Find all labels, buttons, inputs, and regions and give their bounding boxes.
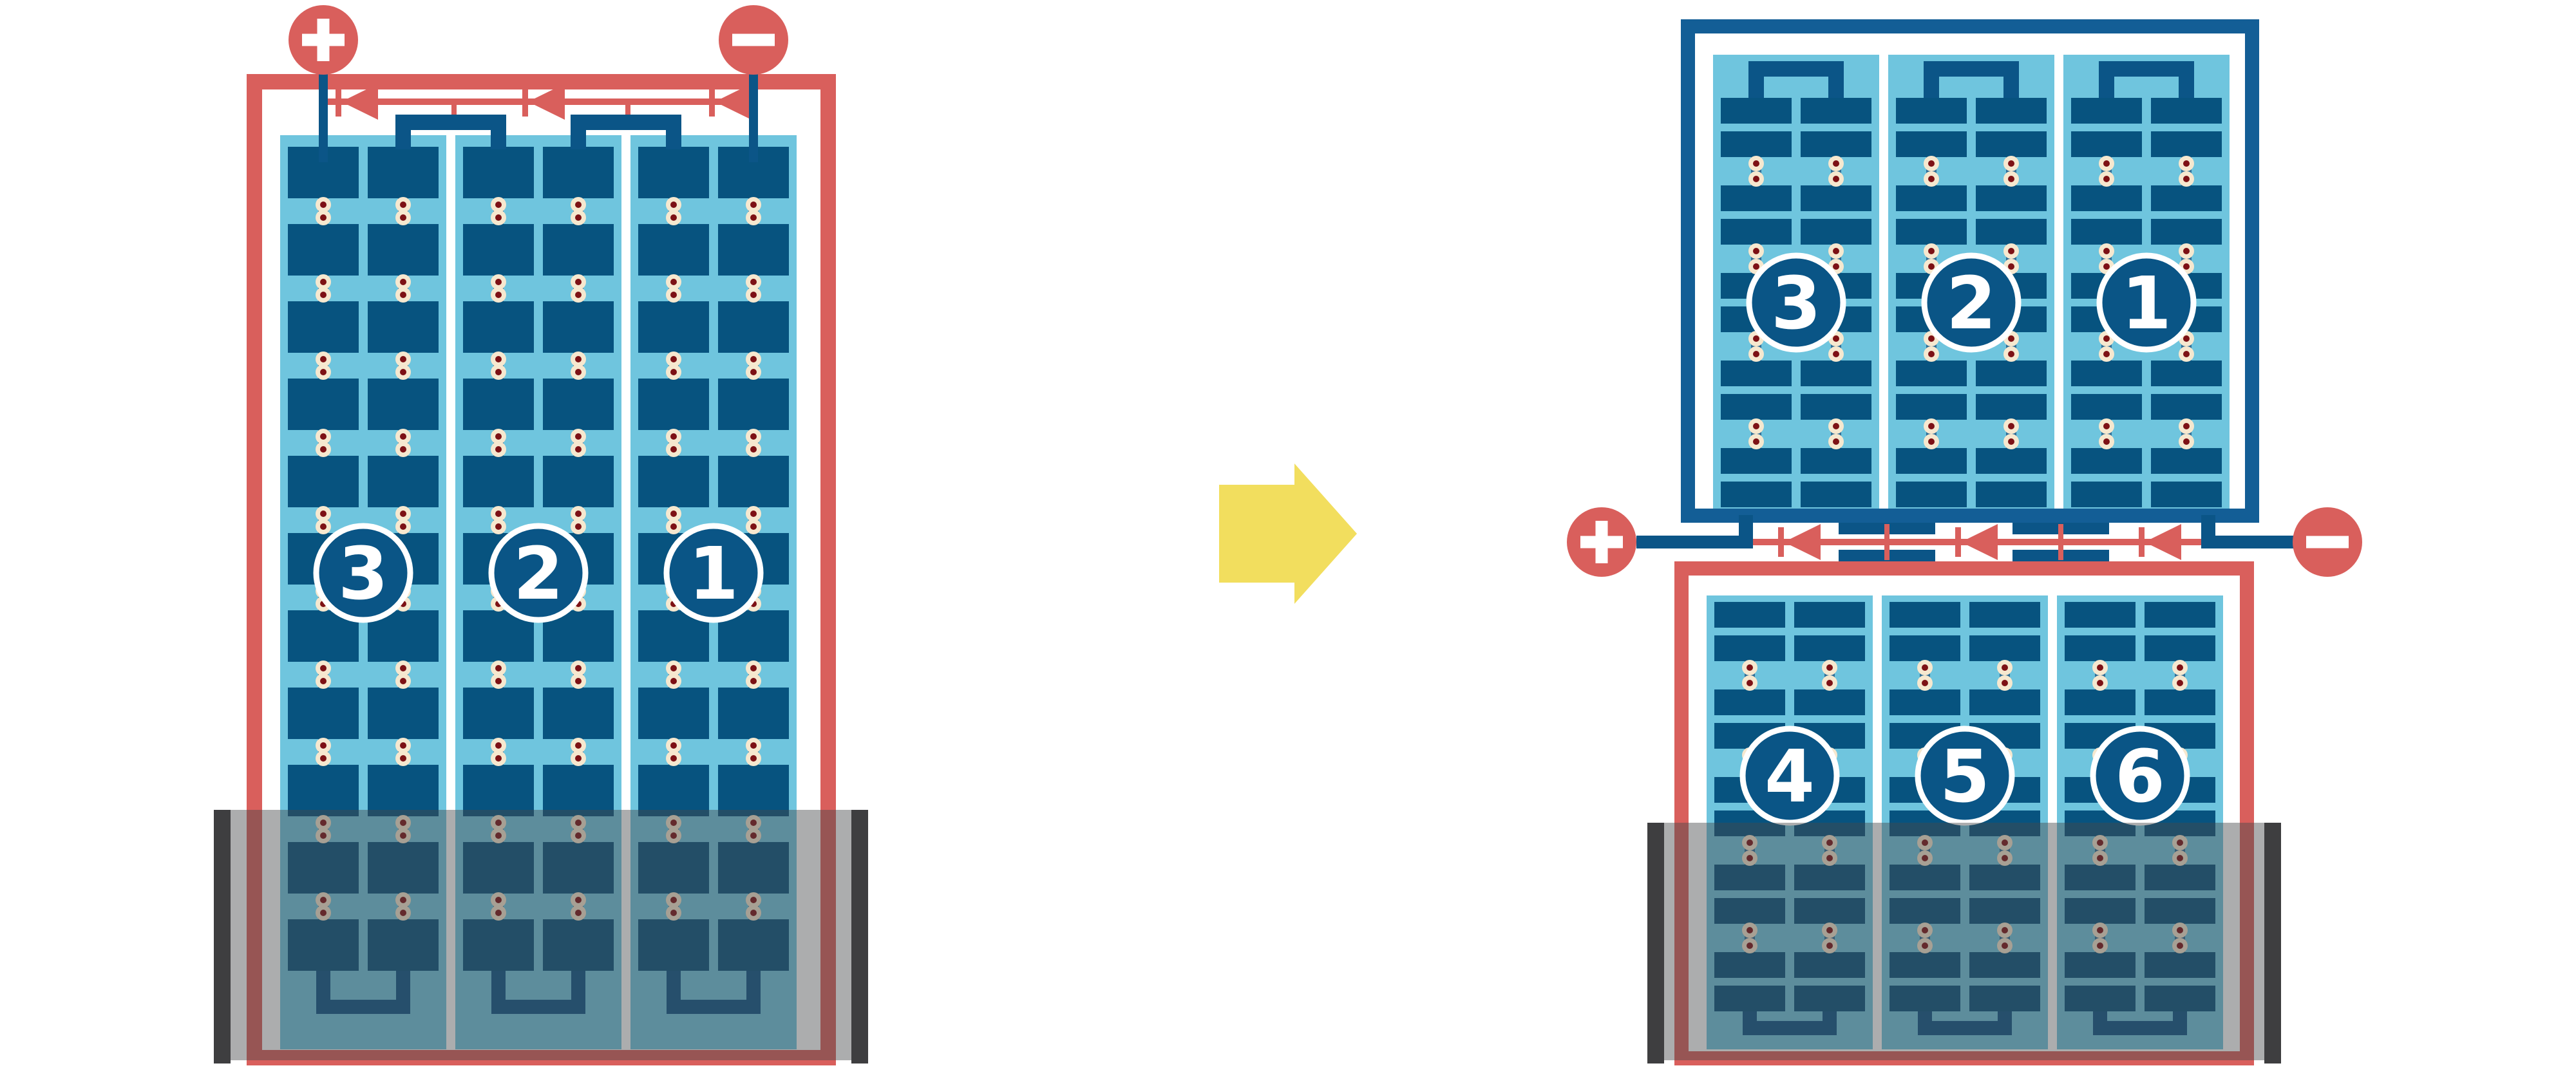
solder-dot-core	[575, 292, 582, 298]
solder-dot-core	[575, 755, 582, 762]
solar-cell	[1721, 185, 1792, 211]
solder-dot-core	[2008, 335, 2014, 342]
string-number: 2	[1946, 262, 1996, 346]
solder-dot-core	[2008, 438, 2014, 445]
solar-cell	[2071, 394, 2142, 420]
solder-dot-core	[495, 279, 502, 285]
bypass-diode-bar	[1778, 527, 1784, 557]
solder-dot-core	[1753, 248, 1759, 254]
solder-dot-core	[2183, 438, 2190, 445]
solar-cell	[288, 456, 359, 507]
solar-cell	[638, 688, 709, 739]
string-number: 5	[1940, 735, 1990, 819]
solar-cell	[1976, 361, 2047, 386]
shade-edge-bar	[1647, 823, 1664, 1063]
solder-dot-core	[400, 356, 406, 362]
solar-cell	[1801, 448, 1871, 474]
solar-cell	[288, 224, 359, 276]
solder-dot-core	[1928, 176, 1935, 182]
busbar-leg	[2099, 61, 2114, 98]
solar-cell	[1896, 448, 1967, 474]
solar-cell	[1976, 131, 2047, 157]
solder-dot-core	[320, 523, 327, 530]
solder-dot-core	[495, 356, 502, 362]
solar-cell	[2151, 219, 2222, 245]
solar-cell	[1896, 98, 1967, 124]
solar-cell	[1794, 689, 1865, 715]
solar-cell	[368, 301, 439, 353]
solder-dot-core	[1753, 351, 1759, 357]
solar-cell	[638, 301, 709, 353]
solder-dot-core	[670, 755, 677, 762]
solder-dot-core	[670, 511, 677, 517]
solar-cell	[1794, 602, 1865, 628]
solder-dot-core	[1753, 160, 1759, 167]
shade-overlay	[231, 810, 851, 1060]
solder-dot-core	[1833, 423, 1839, 429]
solar-cell	[2071, 98, 2142, 124]
solar-cell	[638, 456, 709, 507]
solar-cell	[2071, 185, 2142, 211]
solder-dot-core	[400, 523, 406, 530]
solar-cell	[1896, 131, 1967, 157]
solar-cell	[1969, 689, 2040, 715]
bypass-diode-bar	[709, 87, 715, 117]
solder-dot-core	[670, 279, 677, 285]
solder-dot-core	[495, 446, 502, 453]
solar-cell	[1896, 394, 1967, 420]
solar-panel-string-diagram: 321 321456	[0, 0, 2576, 1068]
solder-dot-core	[2103, 423, 2110, 429]
solder-dot-core	[1928, 438, 1935, 445]
solar-cell	[1801, 219, 1871, 245]
solder-dot-core	[1753, 335, 1759, 342]
solder-dot-core	[2183, 351, 2190, 357]
solar-cell	[1801, 482, 1871, 507]
solar-cell	[1721, 98, 1792, 124]
solder-dot-core	[575, 433, 582, 440]
solder-dot-core	[2002, 680, 2008, 686]
solder-dot-core	[1928, 160, 1935, 167]
solder-dot-core	[320, 369, 327, 375]
solar-cell	[1889, 635, 1960, 661]
solar-cell	[638, 147, 709, 198]
solder-dot-core	[750, 755, 757, 762]
solar-cell	[1714, 602, 1785, 628]
solar-cell	[2071, 482, 2142, 507]
solder-dot-core	[670, 678, 677, 684]
solar-cell	[638, 379, 709, 430]
solder-dot-core	[2177, 680, 2183, 686]
string-number: 1	[2121, 262, 2172, 346]
solar-cell	[2145, 689, 2215, 715]
solder-dot-core	[1833, 335, 1839, 342]
solder-dot-core	[1833, 176, 1839, 182]
busbar-leg	[491, 115, 506, 149]
solder-dot-core	[1753, 176, 1759, 182]
solder-dot-core	[320, 755, 327, 762]
solar-cell	[368, 456, 439, 507]
solder-dot-core	[2103, 438, 2110, 445]
solder-dot-core	[575, 369, 582, 375]
solar-cell	[2151, 98, 2222, 124]
solar-cell	[718, 456, 789, 507]
solder-dot-core	[400, 292, 406, 298]
solar-cell	[2065, 602, 2136, 628]
solder-dot-core	[2183, 335, 2190, 342]
solder-dot-core	[2183, 248, 2190, 254]
solder-dot-core	[320, 433, 327, 440]
solar-cell	[2151, 185, 2222, 211]
negative-terminal	[719, 5, 788, 75]
solder-dot-core	[2183, 176, 2190, 182]
solder-dot-core	[320, 356, 327, 362]
solder-dot-core	[1826, 664, 1833, 671]
shading-overlays	[214, 810, 2281, 1063]
solder-dot-core	[320, 279, 327, 285]
solar-cell	[1801, 394, 1871, 420]
solar-cell	[288, 765, 359, 816]
solder-dot-core	[750, 369, 757, 375]
solder-dot-core	[400, 279, 406, 285]
solar-cell	[2151, 131, 2222, 157]
solder-dot-core	[2008, 160, 2014, 167]
solder-dot-core	[2103, 176, 2110, 182]
string-number: 1	[688, 532, 739, 616]
solder-dot-core	[750, 511, 757, 517]
solder-dot-core	[575, 665, 582, 671]
solder-dot-core	[750, 523, 757, 530]
solder-dot-core	[750, 356, 757, 362]
top-busbar	[571, 115, 681, 130]
solar-cell	[1976, 394, 2047, 420]
solder-dot-core	[670, 369, 677, 375]
solder-dot-core	[1833, 263, 1839, 270]
solar-cell	[543, 456, 614, 507]
solder-dot-core	[575, 678, 582, 684]
solder-dot-core	[400, 678, 406, 684]
solar-cell	[638, 224, 709, 276]
solder-dot-core	[2177, 664, 2183, 671]
solar-cell	[368, 147, 439, 198]
solder-dot-core	[750, 678, 757, 684]
solder-dot-core	[575, 214, 582, 221]
solar-cell	[1801, 98, 1871, 124]
diode-junction	[2058, 524, 2063, 560]
solar-cell	[288, 301, 359, 353]
solder-dot-core	[2002, 664, 2008, 671]
solder-dot-core	[750, 292, 757, 298]
solder-dot-core	[400, 742, 406, 749]
positive-terminal	[289, 5, 358, 75]
solar-cell	[1714, 635, 1785, 661]
string-number: 6	[2115, 735, 2165, 819]
solar-cell	[1721, 219, 1792, 245]
solder-dot-core	[750, 665, 757, 671]
solder-dot-core	[670, 292, 677, 298]
solder-dot-core	[1747, 680, 1753, 686]
solder-dot-core	[495, 292, 502, 298]
solar-cell	[1976, 219, 2047, 245]
solar-cell	[1721, 361, 1792, 386]
transform-arrow-icon	[1219, 464, 1357, 604]
solder-dot-core	[750, 279, 757, 285]
solar-cell	[1714, 689, 1785, 715]
solder-dot-core	[320, 446, 327, 453]
solder-dot-core	[495, 678, 502, 684]
solar-cell	[2145, 635, 2215, 661]
solder-dot-core	[1826, 680, 1833, 686]
solder-dot-core	[400, 755, 406, 762]
minus-icon	[732, 34, 775, 46]
solar-cell	[463, 379, 534, 430]
string-number: 3	[338, 532, 388, 616]
solar-cell	[543, 765, 614, 816]
shade-overlay	[1664, 823, 2264, 1060]
solar-cell	[1801, 361, 1871, 386]
solder-dot-core	[670, 214, 677, 221]
solder-dot-core	[400, 665, 406, 671]
solar-cell	[463, 688, 534, 739]
solar-cell	[368, 765, 439, 816]
solder-dot-core	[1922, 680, 1928, 686]
solder-dot-core	[400, 201, 406, 208]
solder-dot-core	[670, 433, 677, 440]
solder-dot-core	[320, 201, 327, 208]
solar-cell	[718, 224, 789, 276]
solder-dot-core	[400, 446, 406, 453]
solder-dot-core	[1922, 664, 1928, 671]
solar-cell	[2071, 361, 2142, 386]
busbar-leg	[1748, 61, 1764, 98]
solder-dot-core	[495, 201, 502, 208]
solder-dot-core	[320, 665, 327, 671]
solar-cell	[543, 688, 614, 739]
solder-dot-core	[750, 214, 757, 221]
solder-dot-core	[575, 511, 582, 517]
transform-arrow	[1219, 464, 1357, 604]
solar-cell	[543, 379, 614, 430]
solar-cell	[1976, 185, 2047, 211]
solar-cell	[1721, 448, 1792, 474]
solder-dot-core	[1833, 351, 1839, 357]
busbar-leg	[1828, 61, 1844, 98]
solder-dot-core	[1928, 248, 1935, 254]
solder-dot-core	[2103, 160, 2110, 167]
solder-dot-core	[400, 511, 406, 517]
solar-cell	[288, 688, 359, 739]
shade-edge-bar	[2264, 823, 2281, 1063]
solar-cell	[1721, 131, 1792, 157]
solar-cell	[1969, 635, 2040, 661]
solar-cell	[288, 379, 359, 430]
solar-cell	[2071, 219, 2142, 245]
bypass-diode-icon	[2145, 524, 2181, 560]
solar-cell	[1976, 98, 2047, 124]
solar-cell	[1976, 448, 2047, 474]
solar-cell	[543, 224, 614, 276]
solder-dot-core	[1747, 664, 1753, 671]
solder-dot-core	[575, 523, 582, 530]
plus-icon	[1596, 521, 1608, 563]
solder-dot-core	[1833, 438, 1839, 445]
solder-dot-core	[2103, 335, 2110, 342]
solder-dot-core	[495, 433, 502, 440]
negative-terminal	[2293, 507, 2362, 577]
solder-dot-core	[1753, 263, 1759, 270]
solar-cell	[543, 147, 614, 198]
bypass-diode-bar	[1955, 527, 1961, 557]
solar-cell	[638, 765, 709, 816]
solar-cell	[2071, 131, 2142, 157]
bypass-diode-bar	[522, 87, 528, 117]
solar-cell	[1896, 361, 1967, 386]
diagram-canvas: 321 321456	[0, 0, 2576, 1068]
solder-dot-core	[320, 292, 327, 298]
solder-dot-core	[670, 742, 677, 749]
solder-dot-core	[495, 665, 502, 671]
solar-cell	[1889, 689, 1960, 715]
solar-cell	[1976, 482, 2047, 507]
top-busbar	[395, 115, 506, 130]
solder-dot-core	[575, 356, 582, 362]
solder-dot-core	[2183, 263, 2190, 270]
solder-dot-core	[575, 201, 582, 208]
solar-cell	[1721, 482, 1792, 507]
solder-dot-core	[495, 755, 502, 762]
solder-dot-core	[2103, 351, 2110, 357]
solder-dot-core	[2103, 248, 2110, 254]
solder-dot-core	[2183, 423, 2190, 429]
solar-cell	[2151, 394, 2222, 420]
solar-cell	[2065, 689, 2136, 715]
solder-dot-core	[1753, 423, 1759, 429]
solar-cell	[718, 379, 789, 430]
solar-cell	[1801, 185, 1871, 211]
positive-terminal	[1567, 507, 1636, 577]
busbar-leg	[395, 115, 411, 149]
solar-cell	[718, 688, 789, 739]
solder-dot-core	[2103, 263, 2110, 270]
solder-dot-core	[750, 201, 757, 208]
solder-dot-core	[575, 279, 582, 285]
solder-dot-core	[1833, 248, 1839, 254]
busbar-leg	[571, 115, 586, 149]
solar-cell	[463, 765, 534, 816]
solder-dot-core	[495, 523, 502, 530]
solar-cell	[1801, 131, 1871, 157]
solar-cell	[718, 301, 789, 353]
solder-dot-core	[2008, 263, 2014, 270]
string-number: 2	[513, 532, 563, 616]
busbar-leg	[2003, 61, 2019, 98]
solar-cell	[2145, 602, 2215, 628]
solder-dot-core	[2008, 248, 2014, 254]
bypass-diode-icon	[1961, 524, 1998, 560]
solder-dot-core	[750, 433, 757, 440]
solder-dot-core	[2097, 680, 2103, 686]
solder-dot-core	[2183, 160, 2190, 167]
solar-cell	[1889, 602, 1960, 628]
solar-cell	[2071, 448, 2142, 474]
solder-dot-core	[670, 356, 677, 362]
solar-cell	[2151, 361, 2222, 386]
diode-junction	[1884, 524, 1889, 560]
solder-dot-core	[670, 523, 677, 530]
solar-cell	[368, 688, 439, 739]
lead-riser	[2201, 515, 2215, 548]
solder-dot-core	[495, 369, 502, 375]
bypass-diode-icon	[1784, 524, 1821, 560]
solar-cell	[463, 224, 534, 276]
solder-dot-core	[1833, 160, 1839, 167]
solder-dot-core	[320, 511, 327, 517]
solder-dot-core	[670, 665, 677, 671]
solar-cell	[463, 456, 534, 507]
solar-cell	[1896, 185, 1967, 211]
string-number: 4	[1765, 735, 1815, 819]
solder-dot-core	[2097, 664, 2103, 671]
solar-cell	[718, 765, 789, 816]
solder-dot-core	[320, 742, 327, 749]
lead-riser	[1739, 515, 1753, 548]
solar-cell	[463, 147, 534, 198]
solar-cell	[1721, 394, 1792, 420]
solar-cell	[1969, 602, 2040, 628]
solder-dot-core	[1928, 335, 1935, 342]
solder-dot-core	[2008, 423, 2014, 429]
solder-dot-core	[750, 446, 757, 453]
minus-icon	[2306, 536, 2349, 548]
solar-cell	[543, 301, 614, 353]
busbar-leg	[1924, 61, 1939, 98]
bypass-diode-bar	[336, 87, 341, 117]
solder-dot-core	[400, 369, 406, 375]
solder-dot-core	[670, 201, 677, 208]
solder-dot-core	[320, 678, 327, 684]
solar-cell	[368, 379, 439, 430]
solder-dot-core	[1928, 263, 1935, 270]
solar-cell	[1794, 635, 1865, 661]
solder-dot-core	[2008, 351, 2014, 357]
solder-dot-core	[1928, 351, 1935, 357]
solder-dot-core	[495, 214, 502, 221]
solder-dot-core	[400, 214, 406, 221]
solder-dot-core	[495, 742, 502, 749]
shade-edge-bar	[851, 810, 868, 1063]
solder-dot-core	[1928, 423, 1935, 429]
solder-dot-core	[575, 446, 582, 453]
solar-cell	[1896, 482, 1967, 507]
solar-cell	[463, 301, 534, 353]
solar-cell	[368, 224, 439, 276]
solder-dot-core	[670, 446, 677, 453]
shade-edge-bar	[214, 810, 231, 1063]
solar-cell	[2151, 482, 2222, 507]
busbar-leg	[2179, 61, 2194, 98]
string-number: 3	[1771, 262, 1821, 346]
bypass-diode-bar	[2139, 527, 2145, 557]
solder-dot-core	[400, 433, 406, 440]
solder-dot-core	[320, 214, 327, 221]
busbar-leg	[666, 115, 681, 149]
solder-dot-core	[750, 742, 757, 749]
solder-dot-core	[495, 511, 502, 517]
solar-cell	[1896, 219, 1967, 245]
plus-icon	[317, 19, 330, 61]
solder-dot-core	[1753, 438, 1759, 445]
solder-dot-core	[2008, 176, 2014, 182]
